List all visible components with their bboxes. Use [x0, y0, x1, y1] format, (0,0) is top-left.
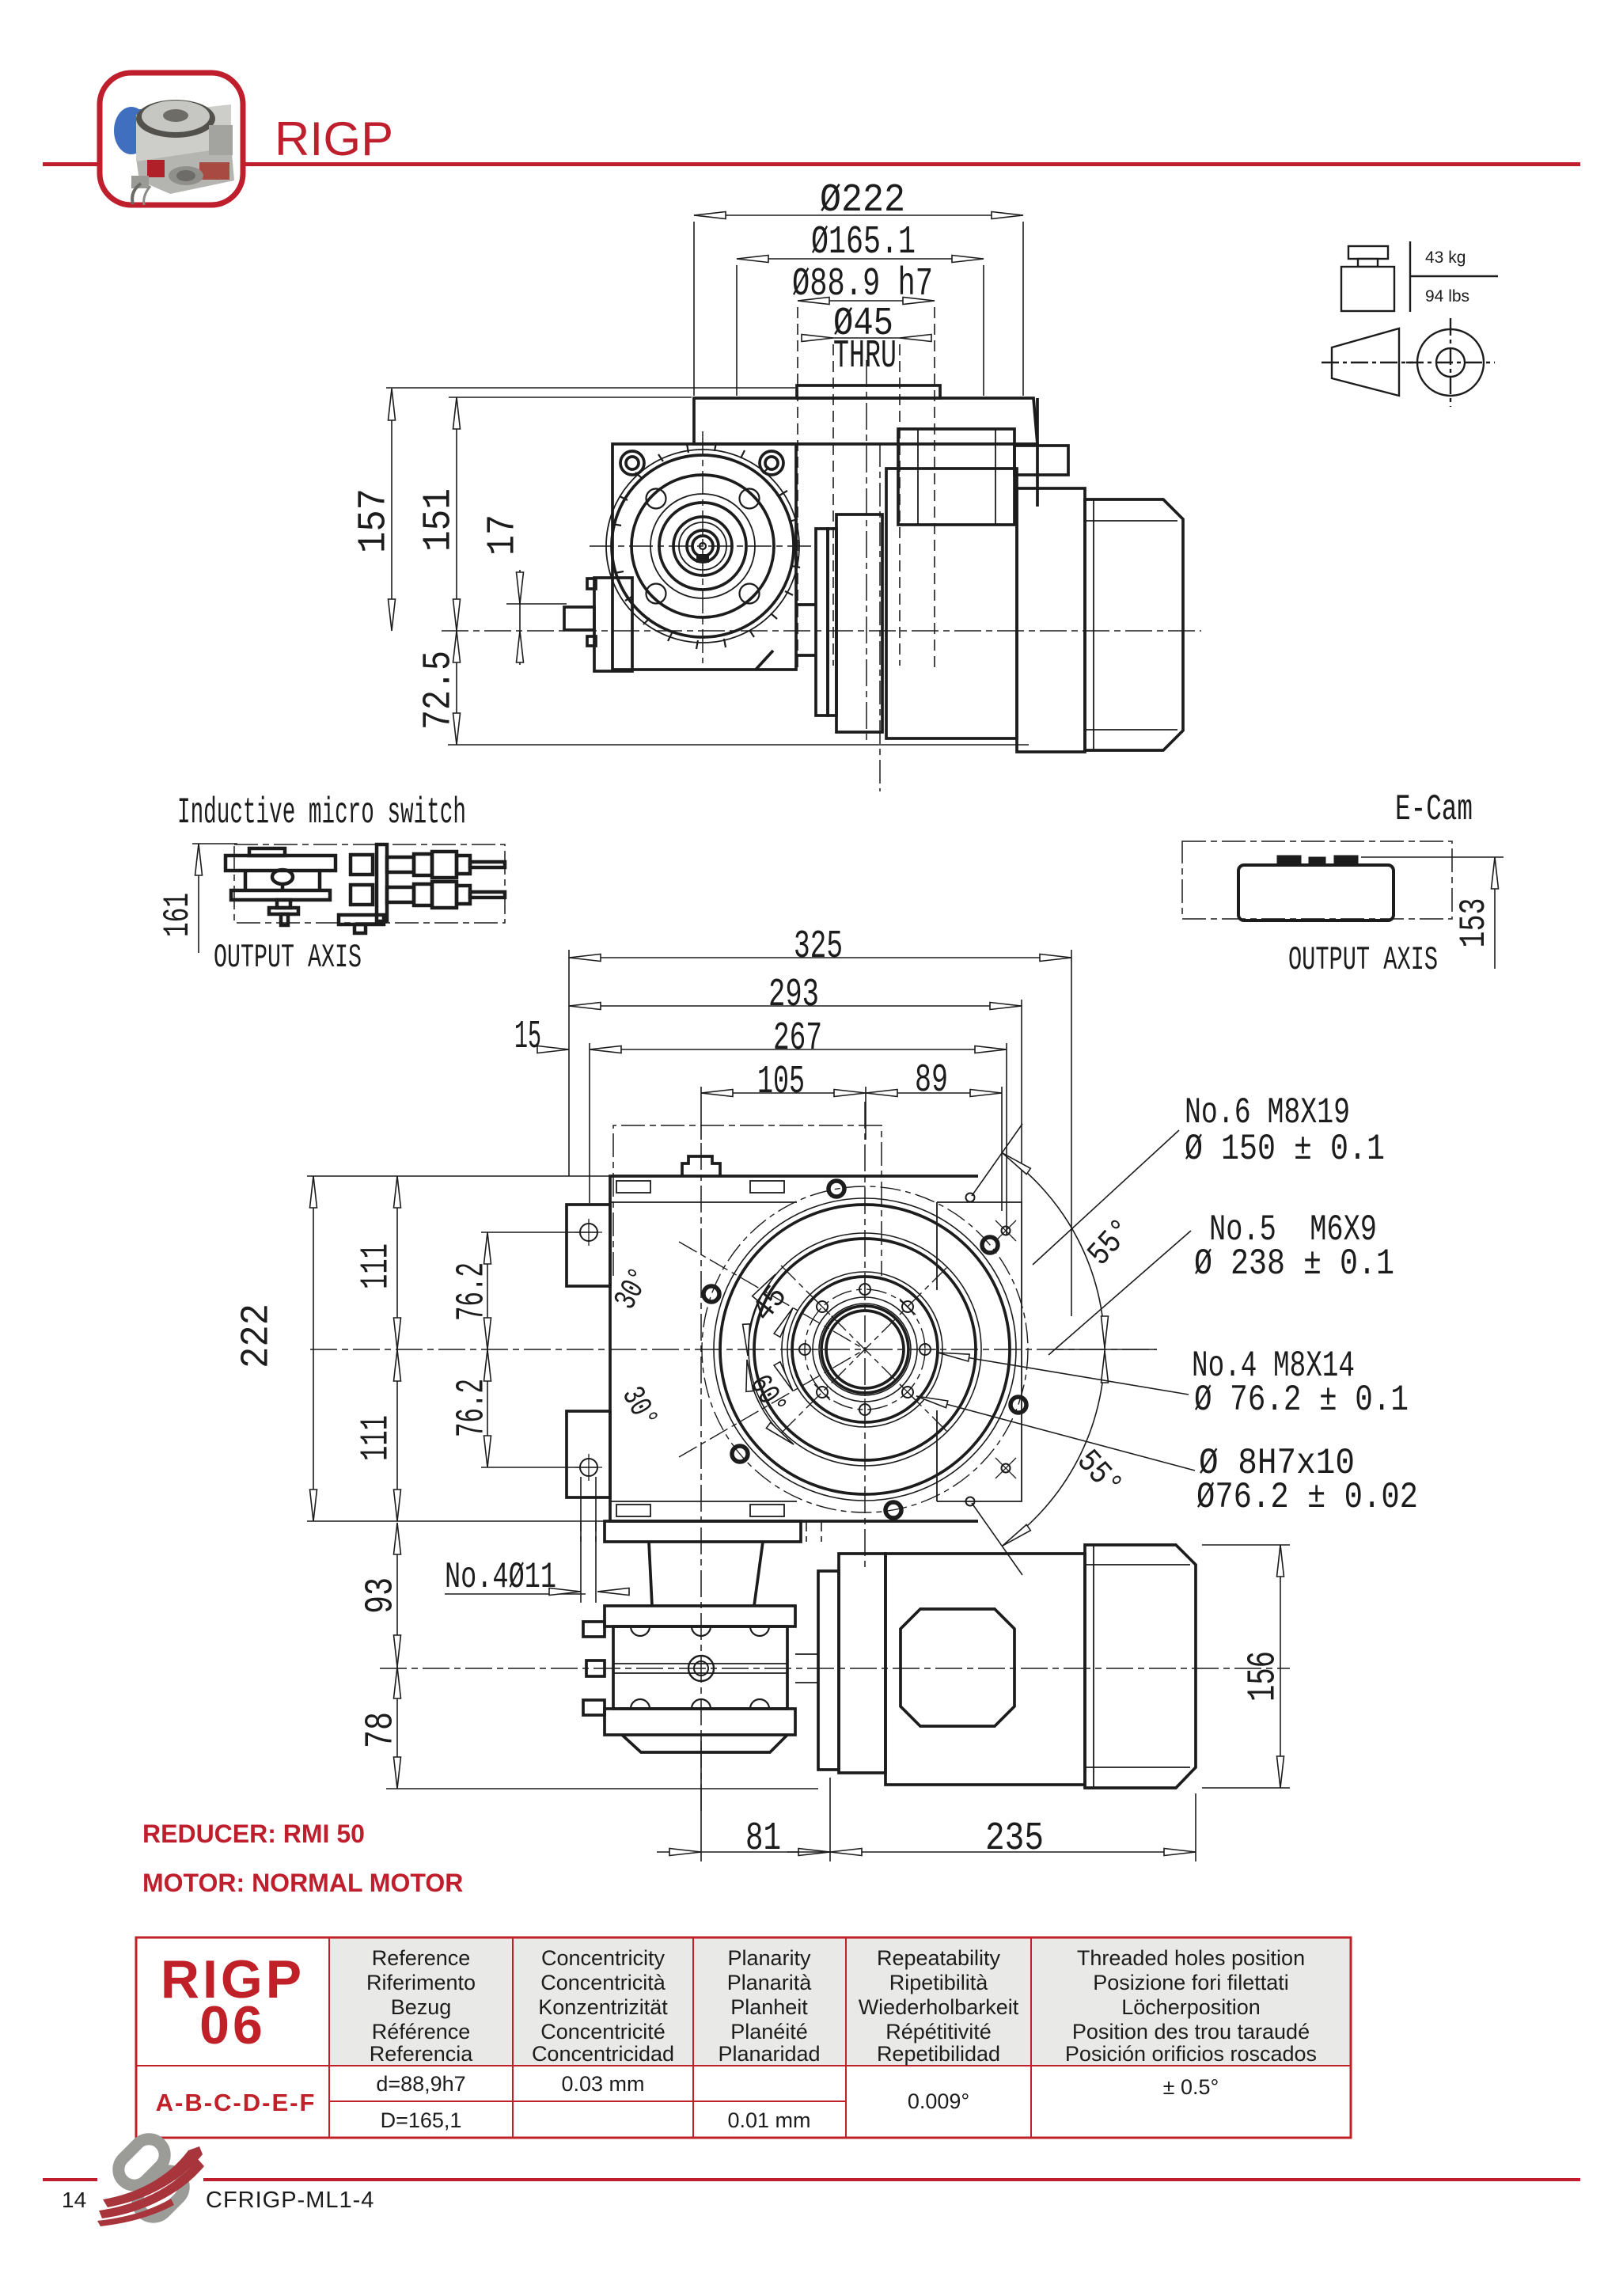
svg-text:94 lbs: 94 lbs: [1425, 287, 1469, 306]
svg-text:Inductive micro switch: Inductive micro switch: [177, 792, 466, 833]
svg-text:Répétitivité: Répétitivité: [885, 2020, 992, 2044]
svg-text:Reference: Reference: [372, 1946, 471, 1970]
svg-text:156: 156: [1242, 1651, 1287, 1702]
svg-text:No.6 M8X19: No.6 M8X19: [1185, 1092, 1350, 1133]
svg-text:CFRIGP-ML1-4: CFRIGP-ML1-4: [206, 2188, 374, 2213]
svg-text:293: 293: [768, 973, 819, 1018]
svg-text:± 0.5°: ± 0.5°: [1163, 2075, 1219, 2099]
svg-text:Planarità: Planarità: [727, 1971, 813, 1994]
svg-text:0.009°: 0.009°: [908, 2089, 969, 2113]
svg-text:43 kg: 43 kg: [1425, 249, 1466, 267]
svg-text:Ø222: Ø222: [820, 178, 905, 223]
svg-text:222: 222: [235, 1304, 280, 1368]
svg-text:Löcherposition: Löcherposition: [1121, 1995, 1261, 2019]
svg-text:A-B-C-D-E-F: A-B-C-D-E-F: [156, 2089, 317, 2116]
svg-text:Concentricità: Concentricità: [540, 1971, 666, 1994]
svg-text:Posición orificios roscados: Posición orificios roscados: [1065, 2042, 1317, 2066]
svg-text:OUTPUT AXIS: OUTPUT AXIS: [1288, 941, 1438, 979]
svg-text:81: 81: [745, 1816, 781, 1861]
svg-text:Ø165.1: Ø165.1: [811, 220, 916, 265]
svg-text:Ø76.2 ± 0.02: Ø76.2 ± 0.02: [1196, 1477, 1418, 1518]
svg-text:Threaded holes position: Threaded holes position: [1077, 1946, 1305, 1970]
svg-text:105: 105: [757, 1060, 805, 1105]
svg-text:76.2: 76.2: [450, 1379, 495, 1437]
svg-text:Concentricity: Concentricity: [541, 1946, 666, 1970]
svg-text:157: 157: [352, 488, 397, 553]
svg-text:Referencia: Referencia: [370, 2042, 474, 2066]
svg-text:Ø 76.2 ± 0.1: Ø 76.2 ± 0.1: [1194, 1379, 1409, 1421]
svg-text:Ø88.9 h7: Ø88.9 h7: [792, 262, 933, 307]
svg-text:0.01 mm: 0.01 mm: [727, 2108, 810, 2132]
svg-text:Planarity: Planarity: [727, 1946, 811, 1970]
svg-text:OUTPUT AXIS: OUTPUT AXIS: [214, 939, 362, 977]
svg-text:Planaridad: Planaridad: [718, 2042, 820, 2066]
svg-text:Ripetibilità: Ripetibilità: [889, 1971, 989, 1994]
svg-text:d=88,9h7: d=88,9h7: [376, 2072, 465, 2096]
svg-text:THRU: THRU: [833, 334, 897, 379]
svg-text:Planéité: Planéité: [730, 2020, 808, 2044]
svg-text:Repeatability: Repeatability: [877, 1946, 1001, 1970]
svg-text:REDUCER: RMI 50: REDUCER: RMI 50: [142, 1820, 365, 1848]
svg-text:MOTOR: NORMAL MOTOR: MOTOR: NORMAL MOTOR: [142, 1869, 463, 1897]
svg-text:161: 161: [157, 893, 199, 937]
svg-text:Position des trou taraudé: Position des trou taraudé: [1072, 2020, 1310, 2044]
svg-text:Ø 238 ± 0.1: Ø 238 ± 0.1: [1194, 1243, 1394, 1285]
svg-text:111: 111: [355, 1415, 400, 1461]
svg-text:Wiederholbarkeit: Wiederholbarkeit: [859, 1995, 1019, 2019]
svg-text:325: 325: [794, 924, 843, 970]
svg-text:78: 78: [359, 1712, 404, 1748]
svg-text:D=165,1: D=165,1: [381, 2108, 462, 2132]
svg-text:Konzentrizität: Konzentrizität: [538, 1995, 668, 2019]
svg-text:Planheit: Planheit: [730, 1995, 808, 2019]
svg-text:93: 93: [359, 1577, 404, 1614]
svg-text:Repetibilidad: Repetibilidad: [877, 2042, 1000, 2066]
svg-text:72.5: 72.5: [417, 651, 462, 730]
svg-text:RIGP: RIGP: [275, 112, 393, 165]
svg-text:E-Cam: E-Cam: [1395, 789, 1473, 830]
svg-text:Riferimento: Riferimento: [366, 1971, 476, 1994]
svg-text:111: 111: [355, 1243, 400, 1289]
svg-text:89: 89: [915, 1058, 948, 1103]
svg-text:235: 235: [985, 1816, 1044, 1861]
svg-text:06: 06: [199, 1995, 266, 2055]
svg-text:15: 15: [514, 1015, 541, 1060]
svg-text:17: 17: [481, 514, 526, 556]
svg-text:Posizione fori filettati: Posizione fori filettati: [1093, 1971, 1289, 1994]
svg-text:No.4Ø11: No.4Ø11: [445, 1557, 556, 1598]
svg-text:76.2: 76.2: [450, 1262, 495, 1321]
svg-text:Bezug: Bezug: [391, 1995, 452, 2019]
svg-text:14: 14: [62, 2188, 86, 2212]
svg-text:Concentricidad: Concentricidad: [532, 2042, 674, 2066]
svg-text:Référence: Référence: [372, 2020, 471, 2044]
svg-text:Ø 150 ± 0.1: Ø 150 ± 0.1: [1185, 1129, 1385, 1170]
svg-text:Concentricité: Concentricité: [540, 2020, 666, 2044]
svg-text:153: 153: [1454, 898, 1495, 948]
svg-text:267: 267: [773, 1016, 822, 1061]
svg-text:0.03 mm: 0.03 mm: [561, 2072, 644, 2096]
svg-text:151: 151: [417, 488, 462, 552]
